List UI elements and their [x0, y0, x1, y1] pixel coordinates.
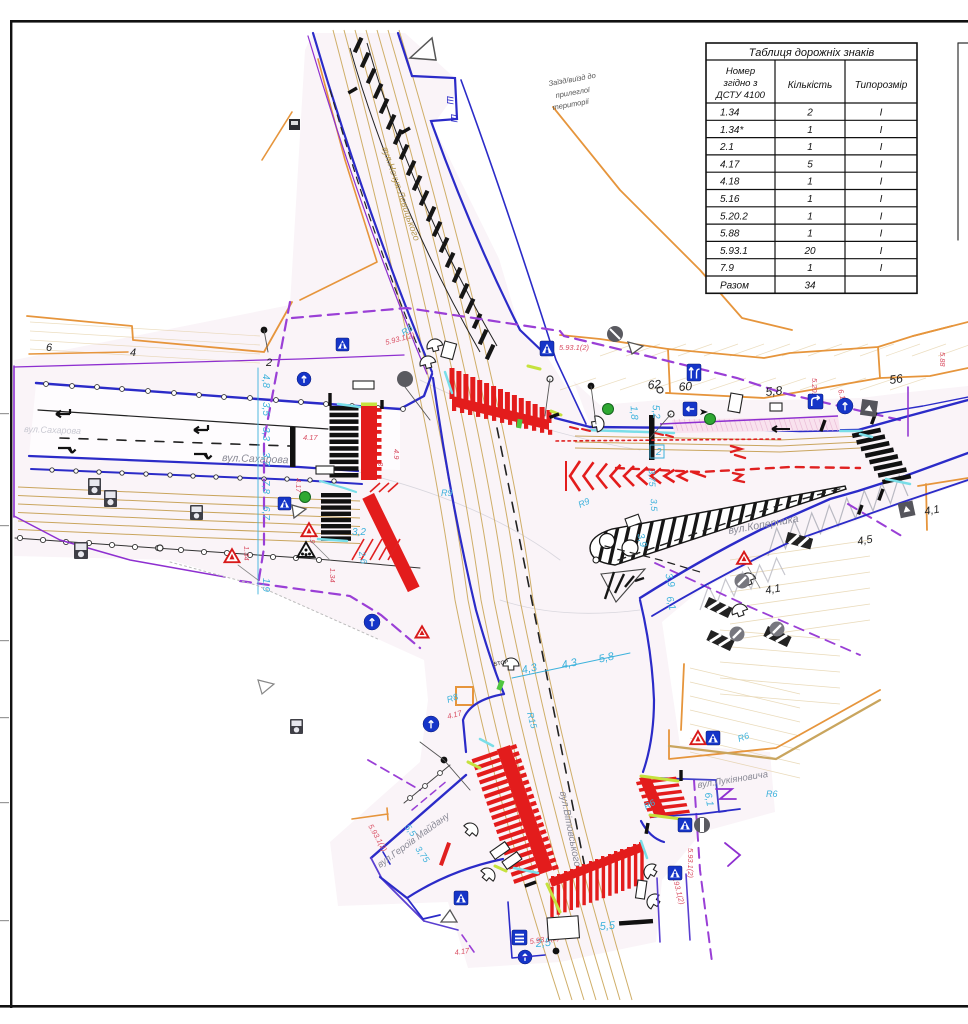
svg-text:згідно з: згідно з [722, 78, 758, 89]
svg-text:3,2: 3,2 [352, 527, 366, 538]
svg-text:4.17: 4.17 [720, 159, 740, 170]
svg-text:3,3: 3,3 [260, 427, 271, 441]
svg-text:20: 20 [803, 246, 816, 257]
svg-text:2.1: 2.1 [719, 142, 734, 153]
svg-text:I: I [880, 211, 883, 222]
svg-text:I: I [880, 177, 883, 188]
svg-text:4.9: 4.9 [392, 449, 401, 460]
svg-text:34: 34 [804, 281, 816, 292]
svg-text:4.17: 4.17 [294, 478, 303, 493]
svg-text:1: 1 [807, 263, 813, 274]
svg-text:2: 2 [265, 357, 272, 369]
svg-text:5.88: 5.88 [720, 229, 740, 240]
svg-text:7.9: 7.9 [720, 263, 734, 274]
svg-text:Ш: Ш [445, 96, 455, 105]
svg-text:Разом: Разом [720, 281, 749, 292]
svg-text:5,5: 5,5 [599, 920, 616, 933]
svg-text:Ш: Ш [449, 114, 459, 123]
svg-text:3,5: 3,5 [260, 402, 271, 416]
svg-text:6,7: 6,7 [260, 506, 271, 520]
svg-text:вул.Сахарова: вул.Сахарова [24, 424, 81, 436]
svg-text:Кількість: Кількість [788, 80, 833, 91]
svg-text:I: I [880, 229, 883, 240]
svg-text:1: 1 [807, 194, 813, 205]
svg-text:Таблиця дорожніх знаків: Таблиця дорожніх знаків [749, 47, 875, 59]
svg-text:5,8: 5,8 [765, 383, 783, 399]
svg-text:2: 2 [806, 108, 813, 119]
svg-text:4.17: 4.17 [303, 433, 318, 442]
svg-text:4.18: 4.18 [720, 177, 740, 188]
svg-text:5: 5 [807, 159, 813, 170]
svg-text:1: 1 [807, 177, 813, 188]
svg-text:5,2: 5,2 [650, 405, 662, 420]
svg-text:1,8: 1,8 [628, 406, 640, 421]
svg-text:1.34: 1.34 [328, 568, 337, 583]
svg-text:7,8: 7,8 [260, 480, 271, 494]
svg-text:I: I [880, 246, 883, 257]
svg-text:Номер: Номер [726, 66, 755, 77]
svg-text:5.93.1(2): 5.93.1(2) [559, 343, 590, 352]
svg-text:1: 1 [807, 142, 813, 153]
svg-text:2: 2 [655, 447, 662, 458]
svg-text:5.88: 5.88 [938, 352, 947, 367]
svg-text:4: 4 [130, 347, 136, 359]
svg-text:60: 60 [678, 379, 693, 394]
svg-text:I: I [880, 142, 883, 153]
svg-text:1,9: 1,9 [260, 578, 271, 592]
svg-text:1.34: 1.34 [720, 108, 740, 119]
svg-text:R6: R6 [766, 789, 778, 799]
svg-text:1: 1 [807, 229, 813, 240]
svg-text:1.34*: 1.34* [720, 125, 744, 136]
svg-text:5.93.1(2): 5.93.1(2) [686, 848, 695, 879]
svg-text:3,75: 3,75 [647, 469, 658, 488]
svg-text:1.34: 1.34 [242, 546, 251, 561]
svg-text:ДСТУ 4100: ДСТУ 4100 [715, 90, 766, 101]
svg-text:вул.Сахарова: вул.Сахарова [222, 452, 289, 466]
svg-text:1: 1 [807, 211, 813, 222]
svg-text:56: 56 [888, 371, 903, 387]
svg-text:R9: R9 [441, 488, 453, 498]
svg-text:6: 6 [46, 342, 53, 354]
svg-text:I: I [880, 194, 883, 205]
svg-text:Типорозмір: Типорозмір [855, 80, 908, 91]
svg-text:5.93.1: 5.93.1 [720, 246, 748, 257]
svg-text:5.20.2: 5.20.2 [720, 211, 748, 222]
svg-text:3,5: 3,5 [649, 498, 659, 512]
svg-text:I: I [880, 125, 883, 136]
svg-text:3,7: 3,7 [260, 452, 271, 466]
svg-text:I: I [880, 159, 883, 170]
svg-text:5.16: 5.16 [720, 194, 740, 205]
svg-text:62: 62 [647, 377, 662, 392]
svg-text:I: I [880, 263, 883, 274]
svg-text:1: 1 [807, 125, 813, 136]
svg-text:I: I [880, 108, 883, 119]
svg-text:4,8: 4,8 [260, 374, 271, 388]
